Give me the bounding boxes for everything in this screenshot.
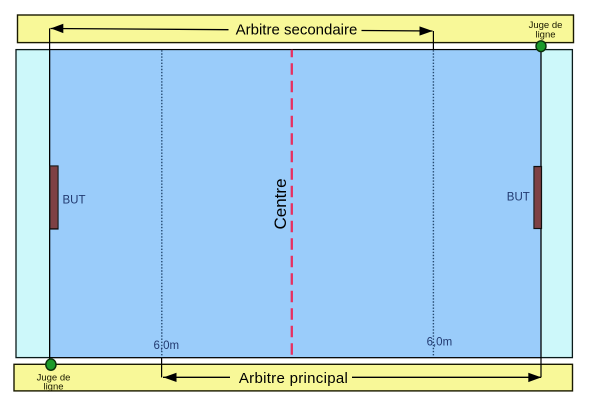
svg-text:Arbitre principal: Arbitre principal <box>239 370 348 387</box>
svg-text:ligne: ligne <box>43 382 63 393</box>
svg-text:Centre: Centre <box>271 178 290 229</box>
svg-text:BUT: BUT <box>507 191 530 203</box>
svg-text:6,0m: 6,0m <box>427 336 453 348</box>
svg-text:BUT: BUT <box>63 194 86 206</box>
svg-text:6,0m: 6,0m <box>154 340 180 352</box>
svg-text:Arbitre secondaire: Arbitre secondaire <box>236 21 358 38</box>
svg-text:ligne: ligne <box>535 29 555 40</box>
